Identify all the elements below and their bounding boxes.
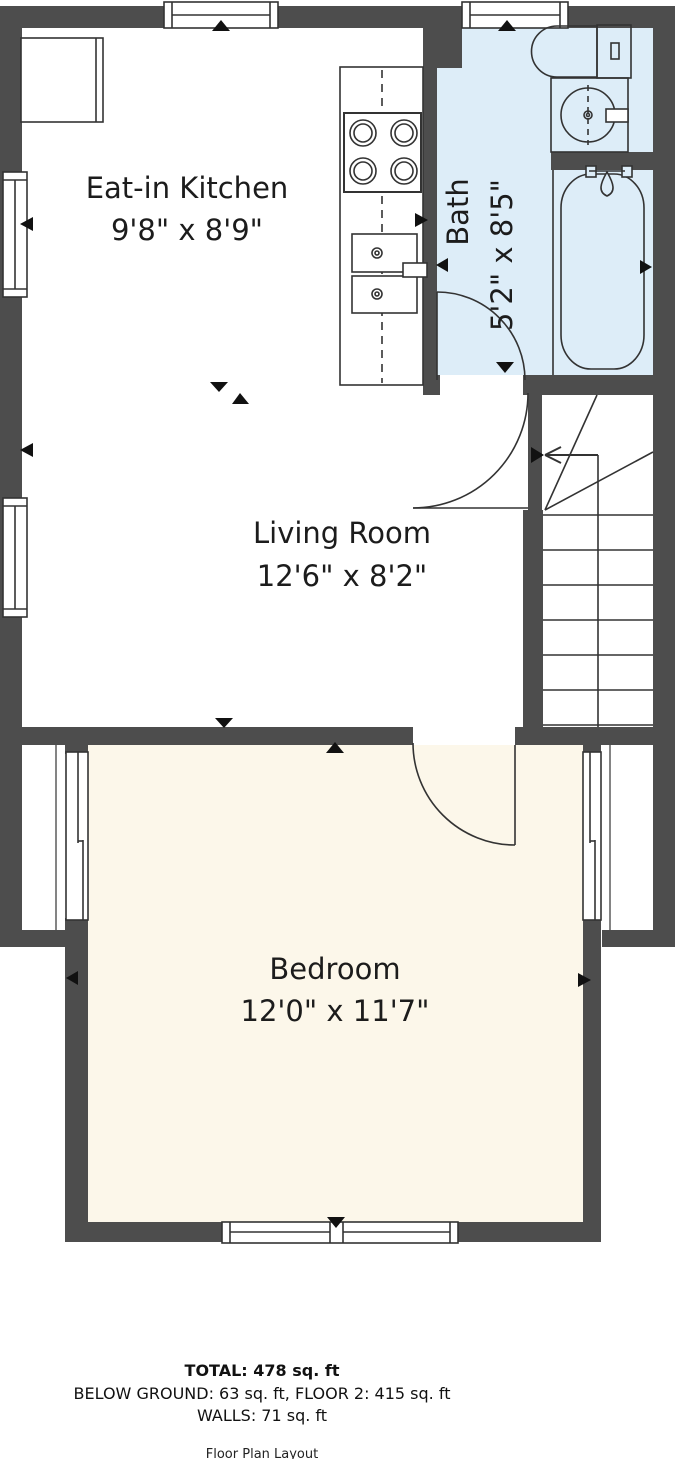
kitchen-dims: 9'8" x 8'9" — [111, 215, 263, 247]
living-room-label: Living Room — [253, 518, 431, 550]
floor-plan: Eat-in Kitchen 9'8" x 8'9" Bath 5'2" x 8… — [0, 0, 675, 1459]
window-icon — [3, 498, 27, 617]
window-icon — [583, 752, 601, 920]
plan-caption: Floor Plan Layout — [206, 1447, 318, 1459]
walls-area-text: WALLS: 71 sq. ft — [197, 1406, 327, 1425]
floor-fills — [22, 28, 654, 1222]
bedroom-label: Bedroom — [269, 954, 400, 986]
refrigerator-icon — [21, 38, 103, 122]
kitchen-label: Eat-in Kitchen — [86, 173, 289, 205]
floor-plan-drawing — [0, 0, 675, 1459]
bath-label: Bath — [443, 178, 475, 245]
window-icon — [222, 1222, 458, 1243]
bedroom-dims: 12'0" x 11'7" — [241, 996, 430, 1028]
stove-icon — [344, 113, 421, 192]
bath-dims: 5'2" x 8'5" — [487, 179, 519, 331]
window-icon — [3, 172, 27, 297]
window-icon — [462, 2, 568, 28]
total-area-text: TOTAL: 478 sq. ft — [185, 1361, 340, 1380]
area-breakdown-text: BELOW GROUND: 63 sq. ft, FLOOR 2: 415 sq… — [74, 1384, 451, 1403]
window-icon — [66, 752, 88, 920]
living-room-dims: 12'6" x 8'2" — [257, 561, 427, 593]
